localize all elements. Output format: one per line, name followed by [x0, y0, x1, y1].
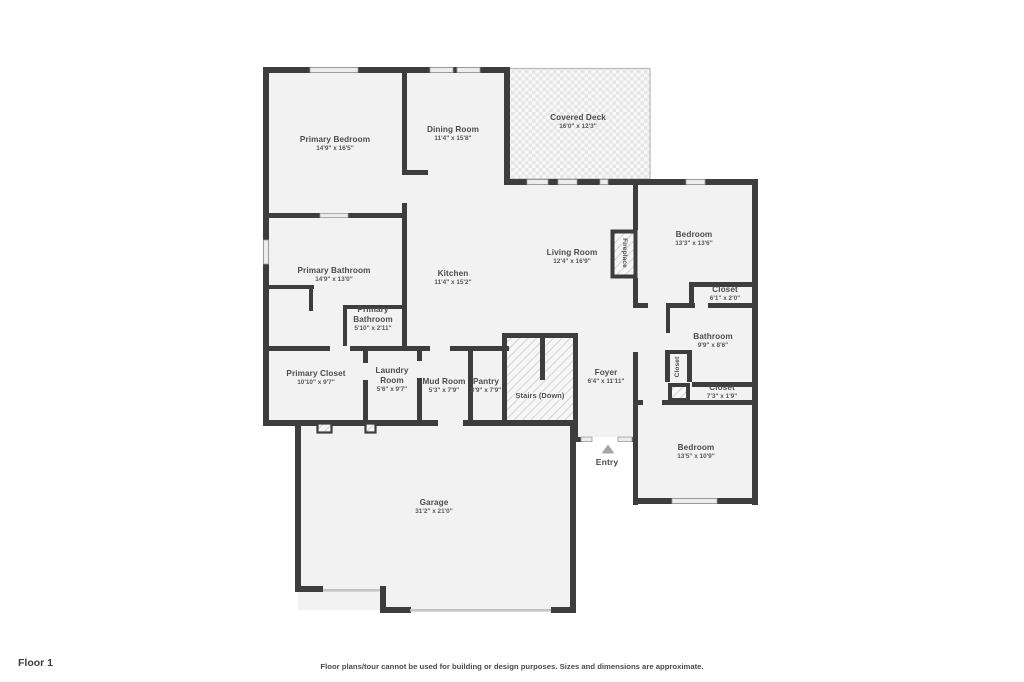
hall-hatch-box — [670, 385, 688, 400]
disclaimer-text: Floor plans/tour cannot be used for buil… — [0, 662, 1024, 671]
covered-deck-area — [509, 69, 650, 180]
entry-direction-icon — [602, 445, 615, 454]
floorplan: Primary Bedroom 14'9" x 16'5" Dining Roo… — [0, 0, 1024, 682]
floorplan-canvas — [0, 0, 1024, 682]
fireplace-shape — [613, 232, 636, 277]
